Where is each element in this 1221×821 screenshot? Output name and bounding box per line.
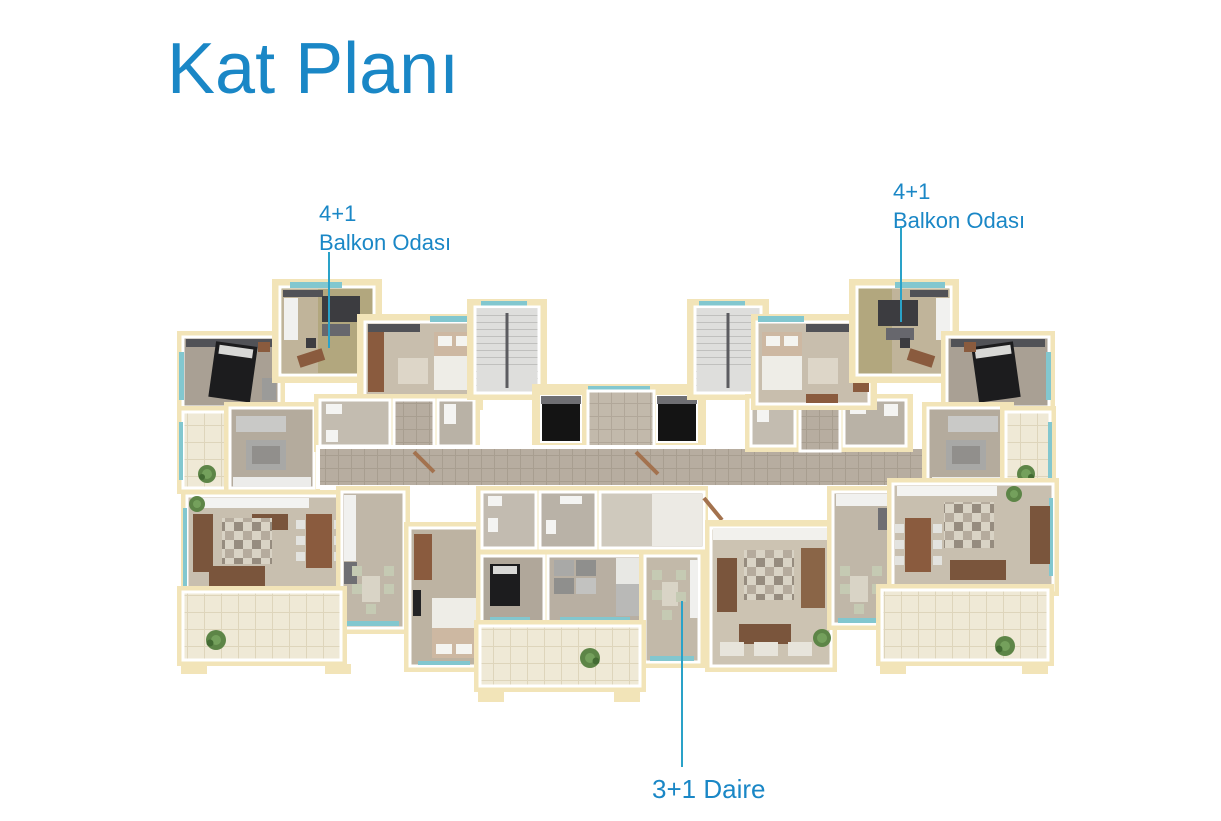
room-living-center: [705, 520, 837, 672]
room-kitchen-center: [639, 550, 705, 668]
room-bedroom-right-top: [941, 331, 1055, 413]
bathrooms-left: [314, 394, 480, 452]
label-right-unit-type: 4+1: [893, 177, 1025, 206]
label-right-unit-room: Balkon Odası: [893, 206, 1025, 235]
label-bottom-unit: 3+1 Daire: [652, 774, 765, 804]
leader-line-left: [328, 252, 330, 348]
label-right-unit: 4+1 Balkon Odası: [893, 177, 1025, 235]
label-left-unit-type: 4+1: [319, 199, 451, 228]
label-bottom-unit-text: 3+1 Daire: [652, 774, 765, 804]
elevator-lobby: [532, 384, 706, 451]
room-study-left: [224, 402, 320, 494]
balcony-small-left: [177, 406, 231, 494]
balcony-right-large: [876, 584, 1054, 674]
label-left-unit-room: Balkon Odası: [319, 228, 451, 257]
label-left-unit: 4+1 Balkon Odası: [319, 199, 451, 257]
room-kitchen-left: [336, 486, 410, 634]
corridor: [318, 447, 930, 487]
room-bedroom-left-top: [177, 331, 285, 413]
leader-line-right: [900, 226, 902, 322]
floor-plan-render: [0, 0, 1221, 821]
room-living-right: [887, 478, 1059, 596]
page-title: Kat Planı: [167, 30, 459, 109]
balcony-left-large: [177, 586, 351, 674]
bathrooms-center: [476, 486, 722, 558]
leader-line-bottom: [681, 601, 683, 767]
bedrooms-center: [476, 550, 656, 628]
balcony-center: [474, 620, 646, 702]
floor-plan-page: Kat Planı 4+1 Balkon Odası 4+1 Balkon Od…: [0, 0, 1221, 821]
